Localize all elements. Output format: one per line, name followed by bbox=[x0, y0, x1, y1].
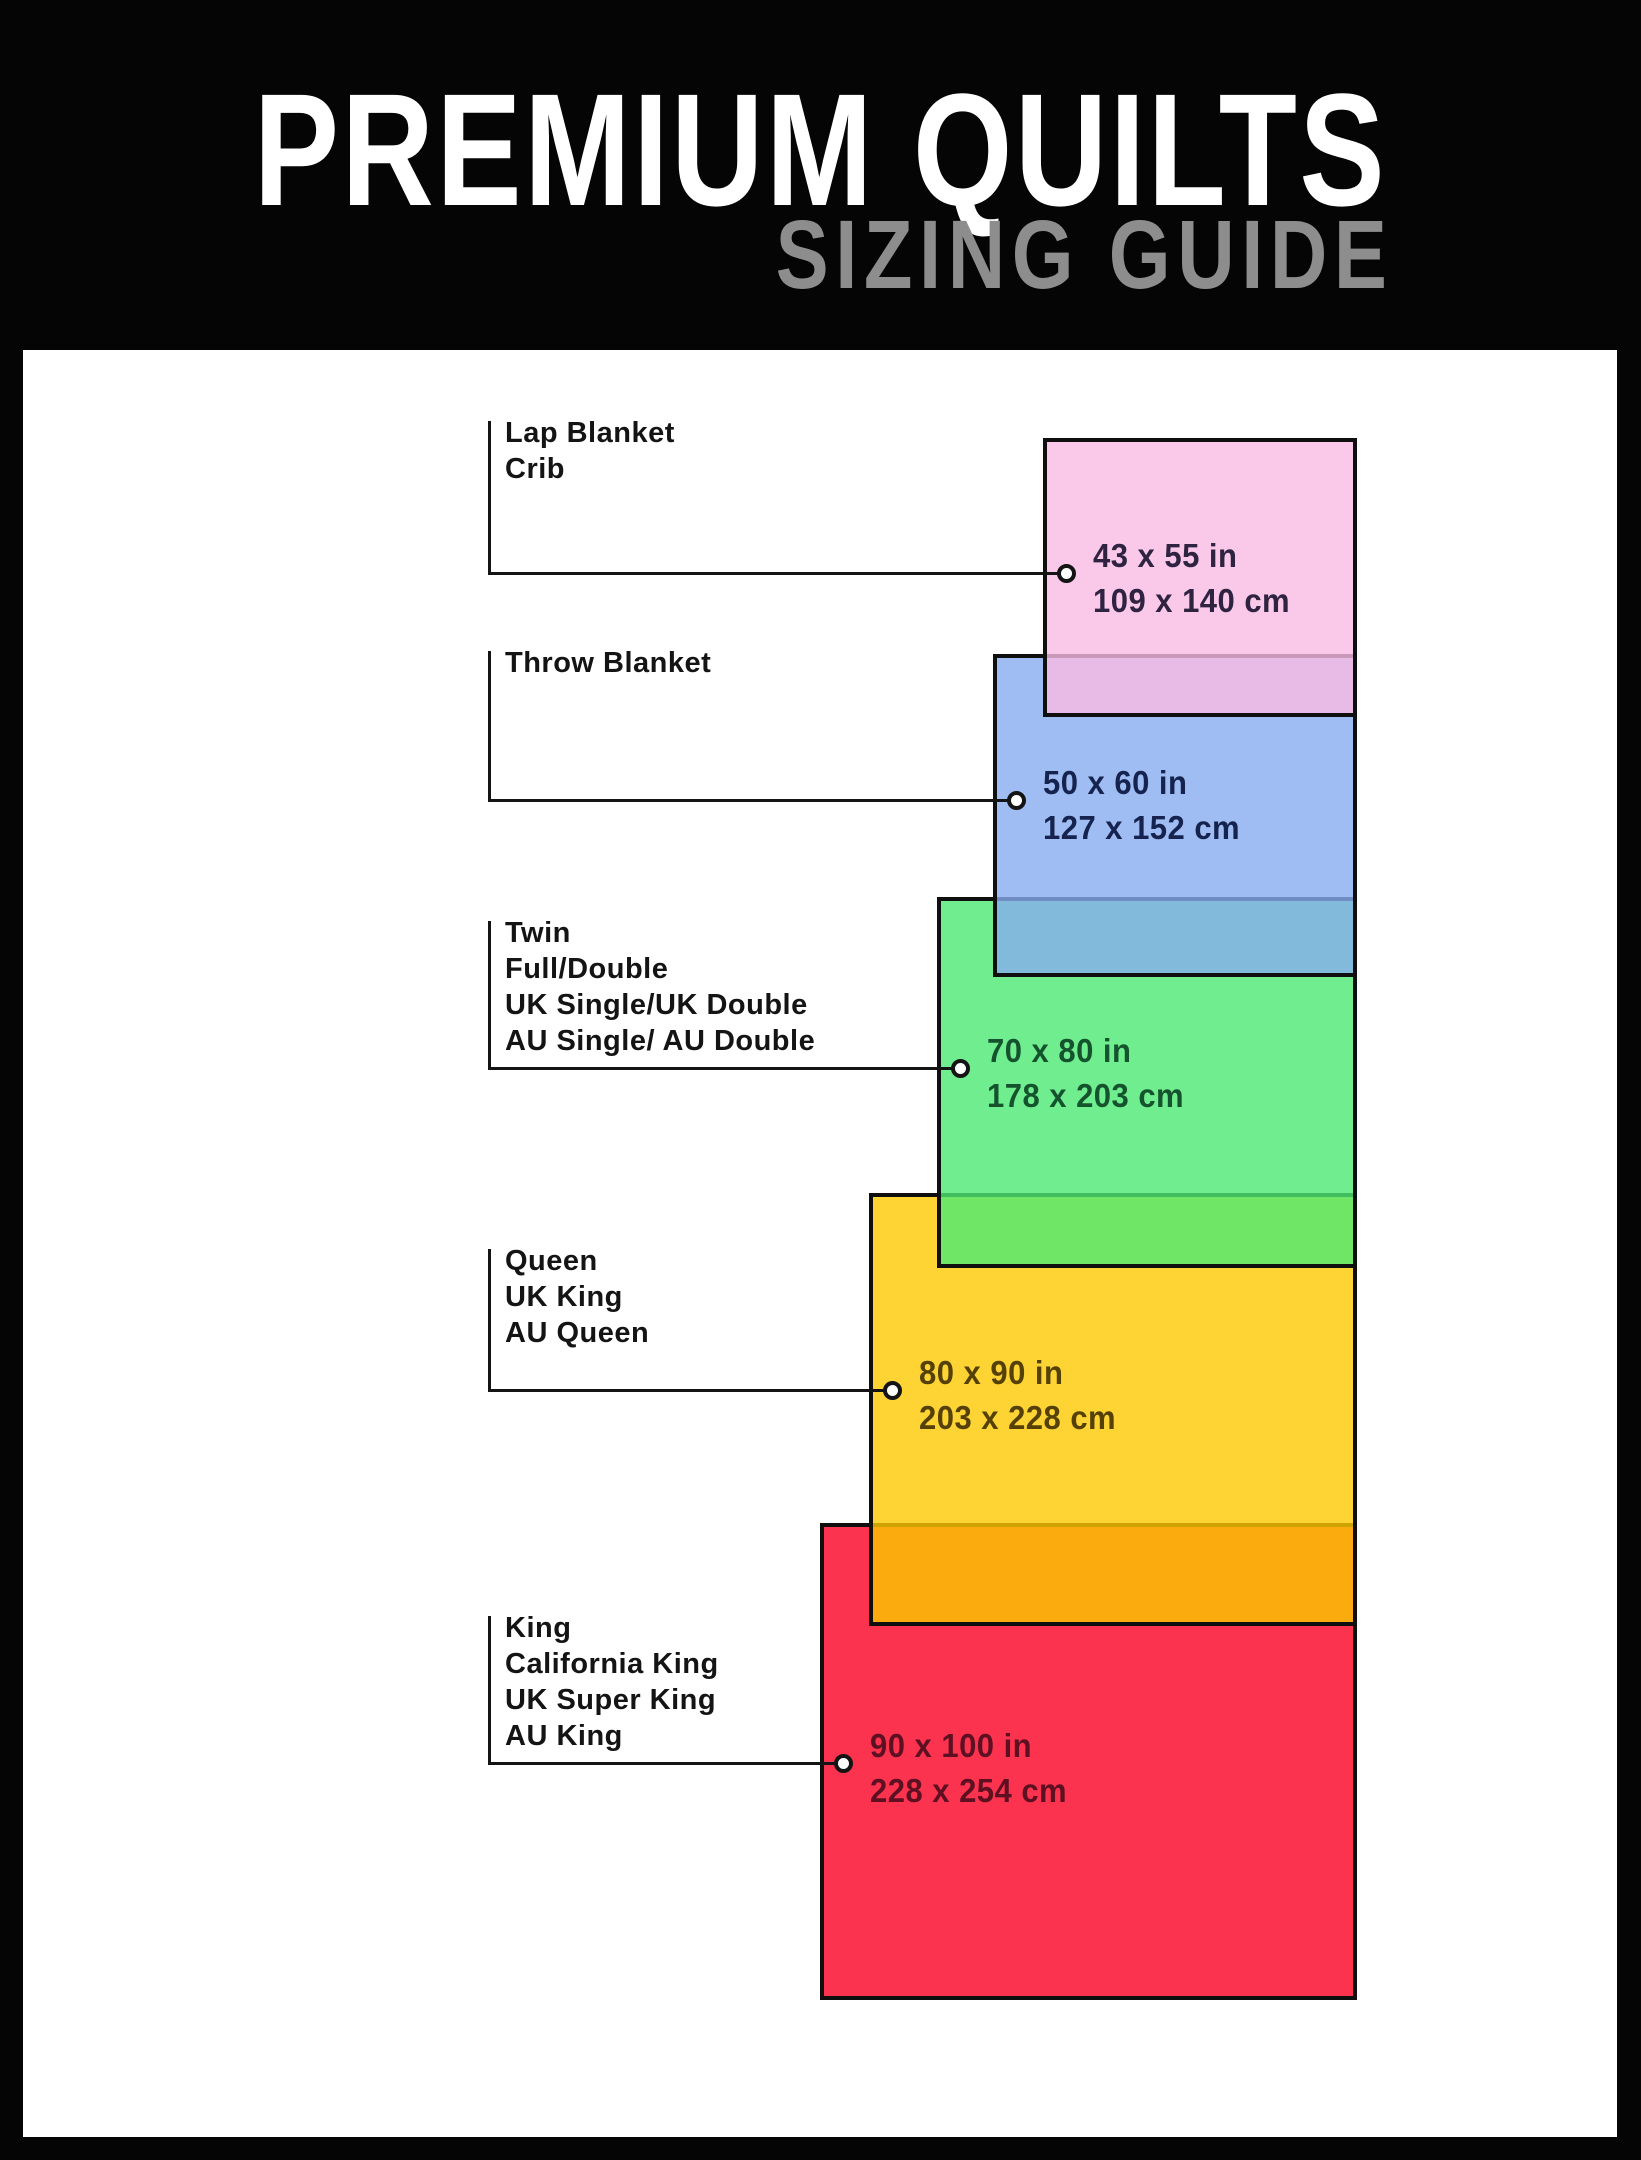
connector-line-vertical-throw-blanket bbox=[488, 651, 491, 802]
page-subtitle: SIZING GUIDE bbox=[640, 206, 1394, 303]
size-dimensions-inches: 70 x 80 in bbox=[987, 1028, 1184, 1073]
connector-line-horizontal-queen-uk-king-au-queen bbox=[488, 1389, 892, 1392]
connector-line-vertical-queen-uk-king-au-queen bbox=[488, 1249, 491, 1392]
size-dimensions-cm: 178 x 203 cm bbox=[987, 1073, 1184, 1118]
size-dimensions-cm: 228 x 254 cm bbox=[870, 1768, 1067, 1813]
size-dimensions-cm: 203 x 228 cm bbox=[919, 1395, 1116, 1440]
connector-dot-icon-lap-blanket-crib bbox=[1057, 564, 1076, 583]
size-dimensions-twin-full-double: 70 x 80 in178 x 203 cm bbox=[987, 1028, 1184, 1118]
size-label-throw-blanket: Throw Blanket bbox=[505, 645, 711, 681]
connector-dot-icon-king-cal-king bbox=[834, 1754, 853, 1773]
size-dimensions-inches: 80 x 90 in bbox=[919, 1350, 1116, 1395]
size-dimensions-cm: 127 x 152 cm bbox=[1043, 805, 1240, 850]
size-label-lap-blanket-crib: Lap Blanket Crib bbox=[505, 415, 675, 487]
connector-line-horizontal-twin-full-double bbox=[488, 1067, 960, 1070]
size-dimensions-inches: 43 x 55 in bbox=[1093, 533, 1290, 578]
size-dimensions-throw-blanket: 50 x 60 in127 x 152 cm bbox=[1043, 760, 1240, 850]
size-dimensions-cm: 109 x 140 cm bbox=[1093, 578, 1290, 623]
connector-line-vertical-lap-blanket-crib bbox=[488, 421, 491, 575]
connector-dot-icon-queen-uk-king-au-queen bbox=[883, 1381, 902, 1400]
connector-line-horizontal-lap-blanket-crib bbox=[488, 572, 1066, 575]
size-label-king-cal-king: King California King UK Super King AU Ki… bbox=[505, 1610, 719, 1754]
page-subtitle-text: SIZING GUIDE bbox=[775, 206, 1393, 303]
infographic-page: { "header": { "title": "PREMIUM QUILTS",… bbox=[0, 0, 1641, 2160]
size-dimensions-king-cal-king: 90 x 100 in228 x 254 cm bbox=[870, 1723, 1067, 1813]
connector-line-horizontal-king-cal-king bbox=[488, 1762, 843, 1765]
connector-line-horizontal-throw-blanket bbox=[488, 799, 1016, 802]
size-dimensions-inches: 90 x 100 in bbox=[870, 1723, 1067, 1768]
size-label-queen-uk-king-au-queen: Queen UK King AU Queen bbox=[505, 1243, 649, 1351]
connector-line-vertical-twin-full-double bbox=[488, 921, 491, 1070]
size-dimensions-lap-blanket-crib: 43 x 55 in109 x 140 cm bbox=[1093, 533, 1290, 623]
connector-line-vertical-king-cal-king bbox=[488, 1616, 491, 1765]
size-label-twin-full-double: Twin Full/Double UK Single/UK Double AU … bbox=[505, 915, 815, 1059]
size-dimensions-queen-uk-king-au-queen: 80 x 90 in203 x 228 cm bbox=[919, 1350, 1116, 1440]
connector-dot-icon-throw-blanket bbox=[1007, 791, 1026, 810]
size-dimensions-inches: 50 x 60 in bbox=[1043, 760, 1240, 805]
connector-dot-icon-twin-full-double bbox=[951, 1059, 970, 1078]
